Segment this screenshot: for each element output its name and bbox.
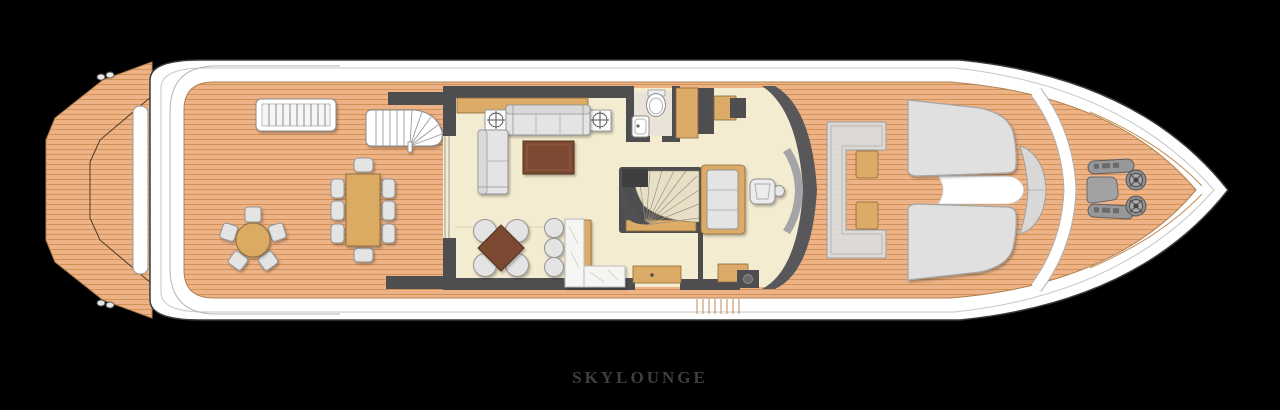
skylounge-interior <box>443 86 817 290</box>
coffee-table <box>523 141 574 174</box>
game-table-set <box>474 220 529 277</box>
sideboard <box>633 266 681 283</box>
windlass-pad <box>1087 177 1118 203</box>
sofa-main <box>506 105 590 135</box>
side-table-left <box>485 110 507 131</box>
stern-platform <box>46 62 152 318</box>
deck-plan-canvas: SKYLOUNGE <box>0 0 1280 410</box>
spiral-staircase <box>619 167 702 233</box>
yacht-skylounge-plan <box>0 0 1280 410</box>
equipment-box <box>730 98 746 118</box>
round-table <box>236 223 270 257</box>
sideboard-knob <box>650 273 654 277</box>
foredeck-walkway <box>938 176 1024 204</box>
cabinet-starboard <box>676 88 698 138</box>
aft-companionway-stairs <box>256 99 336 131</box>
hardtop-support-bottom <box>386 276 445 289</box>
boarding-gate-strip <box>133 106 148 274</box>
helm-bench <box>701 165 745 234</box>
winch-drum-top <box>1126 170 1146 190</box>
bar-stools <box>545 219 564 277</box>
winch-drum-bottom <box>1126 196 1146 216</box>
sink-faucet <box>636 124 639 127</box>
console-knob <box>744 275 753 284</box>
stair-landing <box>622 169 648 187</box>
side-table-right <box>590 110 611 131</box>
dining-table <box>346 174 380 246</box>
foredeck-seat-box-top <box>856 151 878 178</box>
day-head <box>632 90 672 137</box>
foredeck-seat-box-bottom <box>856 202 878 229</box>
aft-quarter-stairs <box>366 110 442 152</box>
sofa-side <box>478 130 508 194</box>
deck-title: SKYLOUNGE <box>0 368 1280 388</box>
